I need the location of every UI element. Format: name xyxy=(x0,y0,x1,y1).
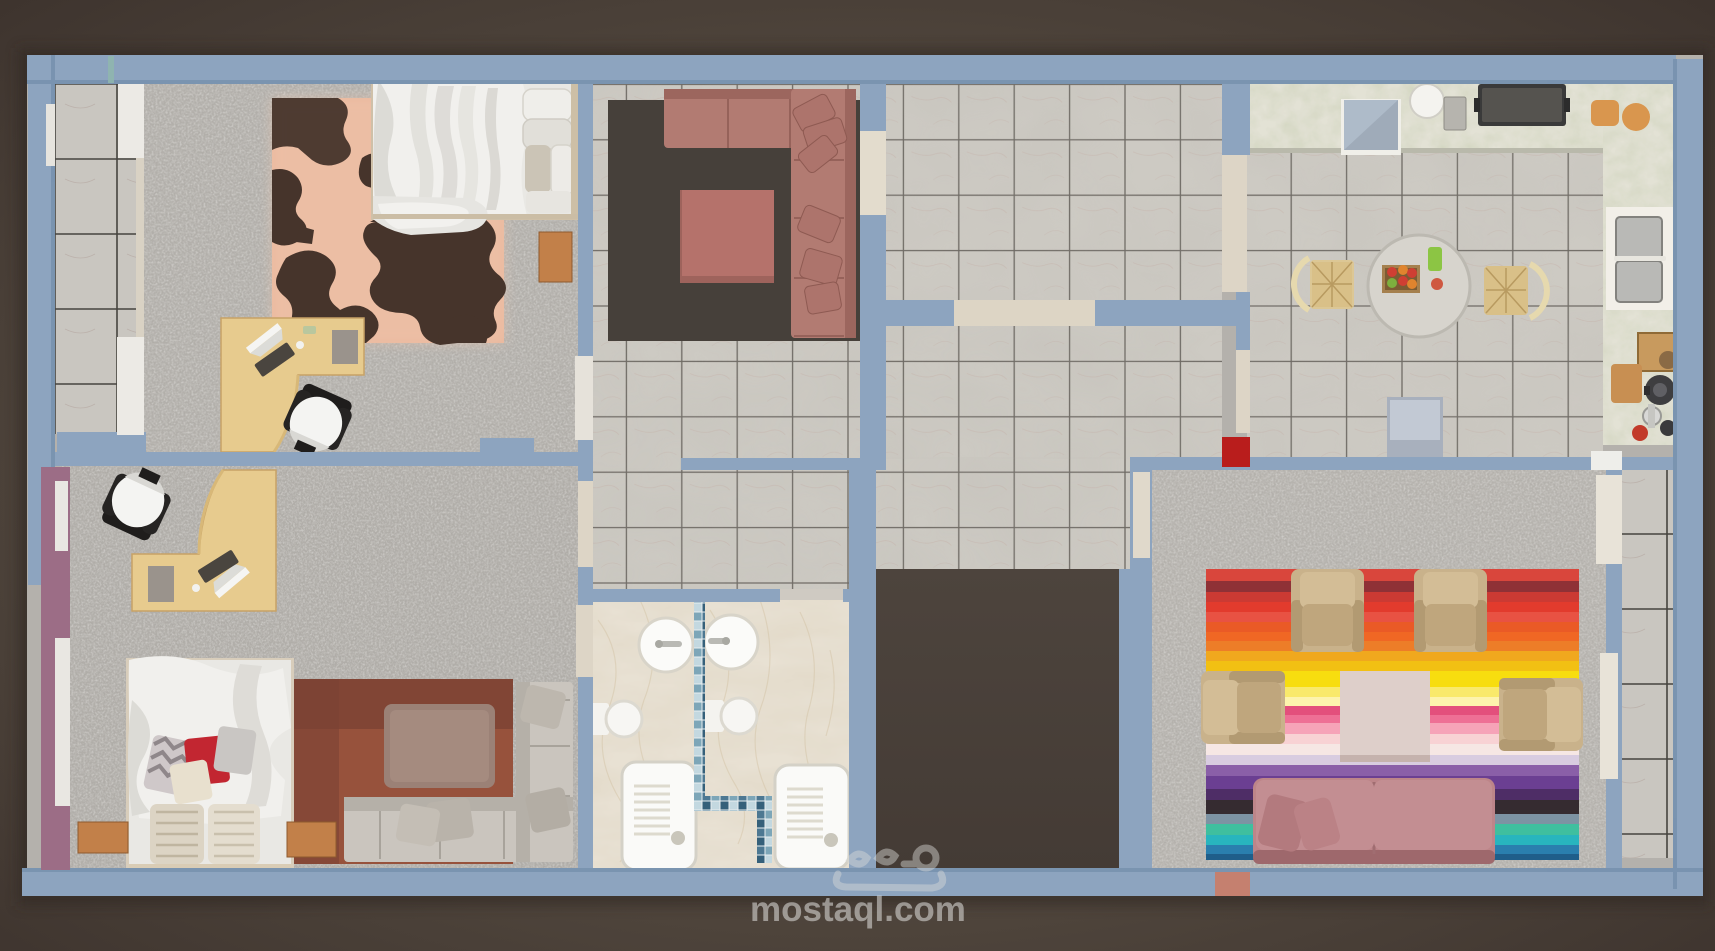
svg-text:mostaql.com: mostaql.com xyxy=(750,890,966,929)
